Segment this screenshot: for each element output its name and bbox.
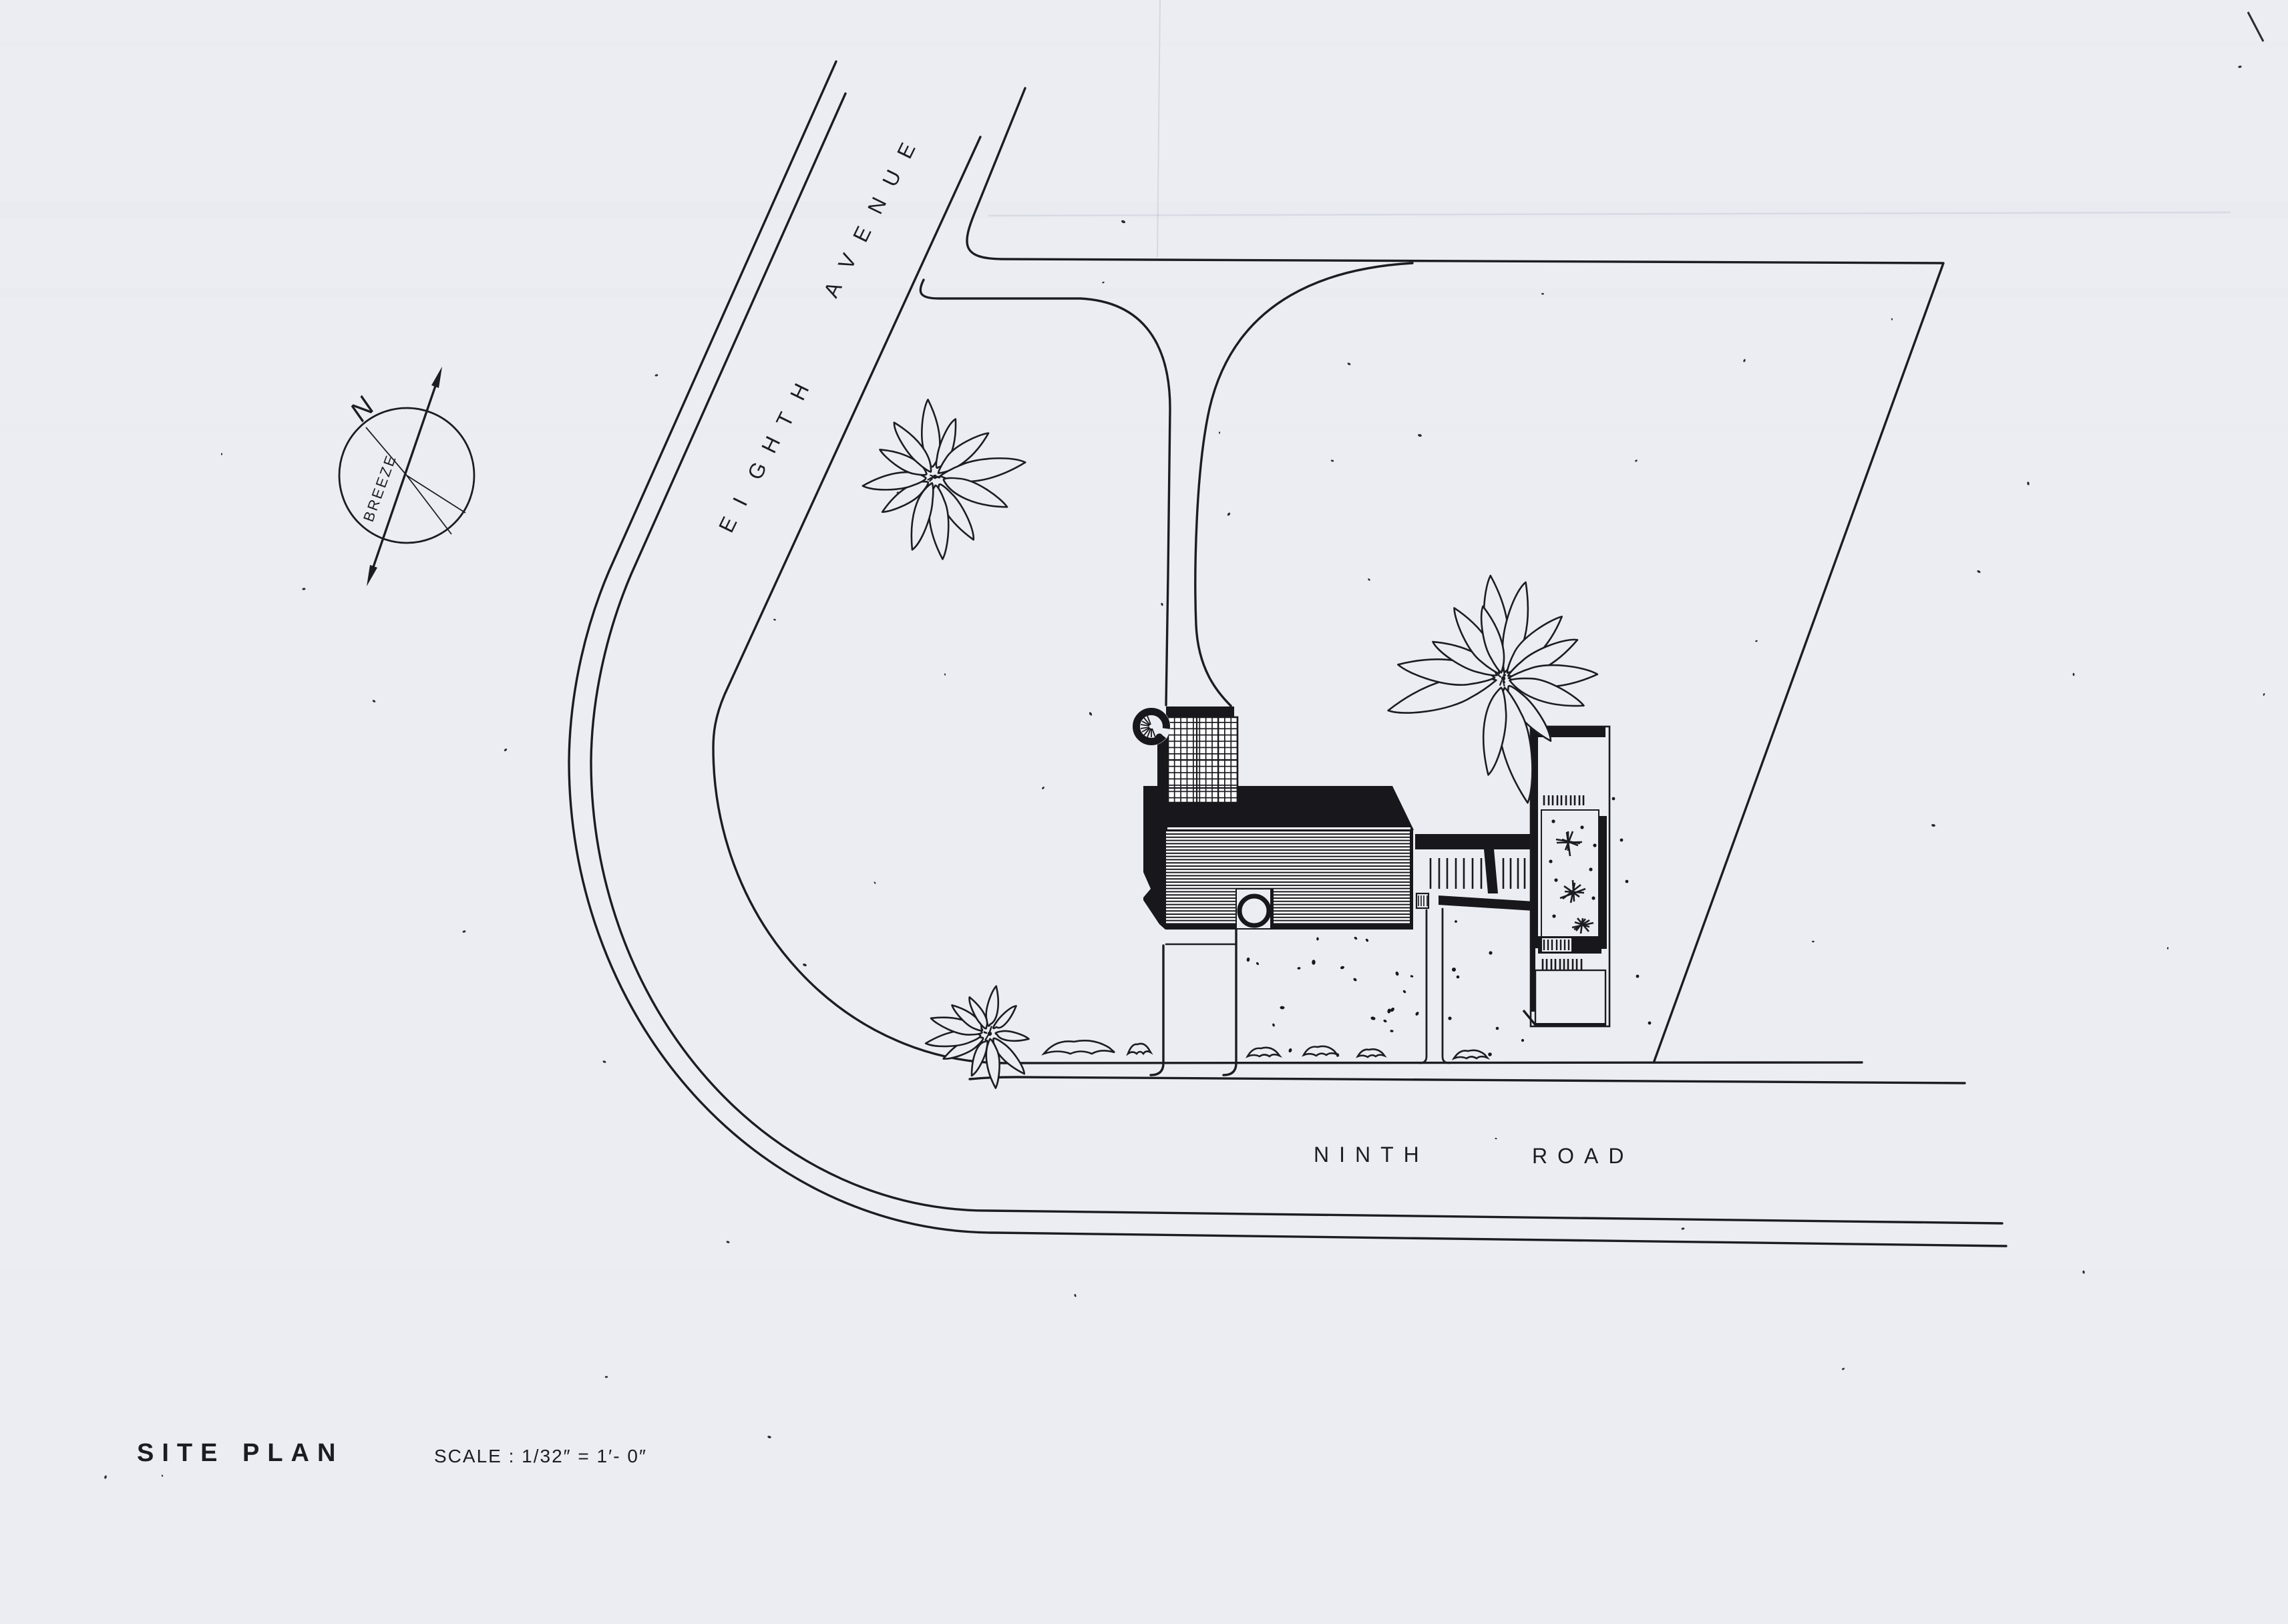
svg-text:NINTH: NINTH — [1314, 1143, 1429, 1167]
svg-text:ROAD: ROAD — [1532, 1144, 1634, 1168]
svg-text:SCALE : 1/32″ = 1′- 0″: SCALE : 1/32″ = 1′- 0″ — [434, 1446, 647, 1466]
svg-text:PLAN: PLAN — [242, 1439, 343, 1467]
svg-text:SITE: SITE — [137, 1439, 225, 1467]
